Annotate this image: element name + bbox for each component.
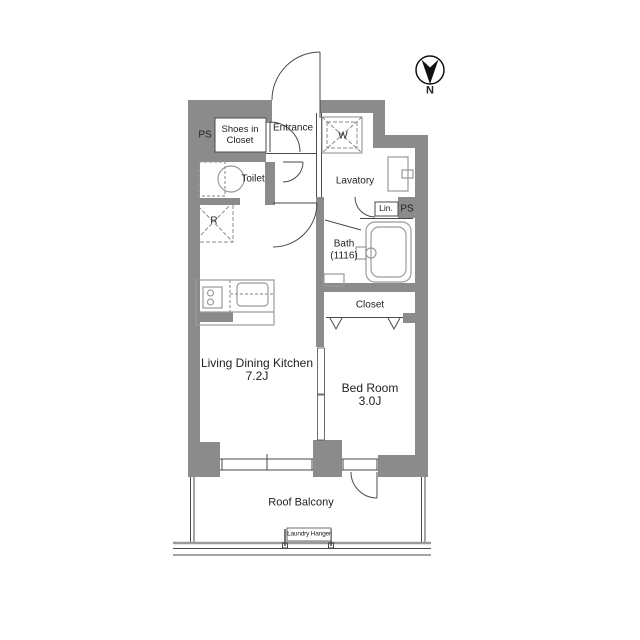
shoes-in-closet-label: Shoes inCloset [222,124,259,146]
ps-left-label: PS [198,129,211,141]
balcony-railing [173,477,431,555]
bedroom-label: Bed Room3.0J [342,382,399,408]
lavatory-sink [388,157,408,191]
linen-label: Lin. [379,204,393,214]
north-label: N [426,85,434,98]
entrance-label: Entrance [273,122,313,134]
closet-hanger-icon [330,318,342,329]
bath-door-leaf [325,220,361,230]
floor-plan-drawing [0,0,640,640]
toilet-tank [199,162,225,196]
closet-hanger-icon [388,318,400,329]
sliding-door-panel [318,395,325,440]
balcony-door-arc [351,472,377,498]
ps-right-label: PS [400,203,413,215]
toilet-label: Toilet [241,173,264,185]
lavatory-label: Lavatory [336,175,374,187]
refrigerator-label: R [210,215,217,227]
bath-label: Bath(1116) [330,239,357,262]
floor-plan: PS Shoes inCloset Entrance W Toilet Lava… [0,0,640,640]
laundry-hanger-label: Laundry Hanger [287,530,331,537]
toilet-bowl [218,166,244,192]
ldk-label: Living Dining Kitchen7.2J [201,357,313,383]
sliding-door-panel [318,348,325,394]
washer-label: W [338,130,347,142]
toilet-door-arc [283,162,303,182]
lavatory-door-arc [355,197,375,217]
closet-label: Closet [356,299,384,311]
ldk-door-arc [273,203,317,247]
north-arrow-icon [416,56,444,84]
burner-icon [208,290,214,296]
roof-balcony-label: Roof Balcony [268,497,333,510]
burner-icon [208,299,214,305]
entrance-door-arc [272,52,320,100]
